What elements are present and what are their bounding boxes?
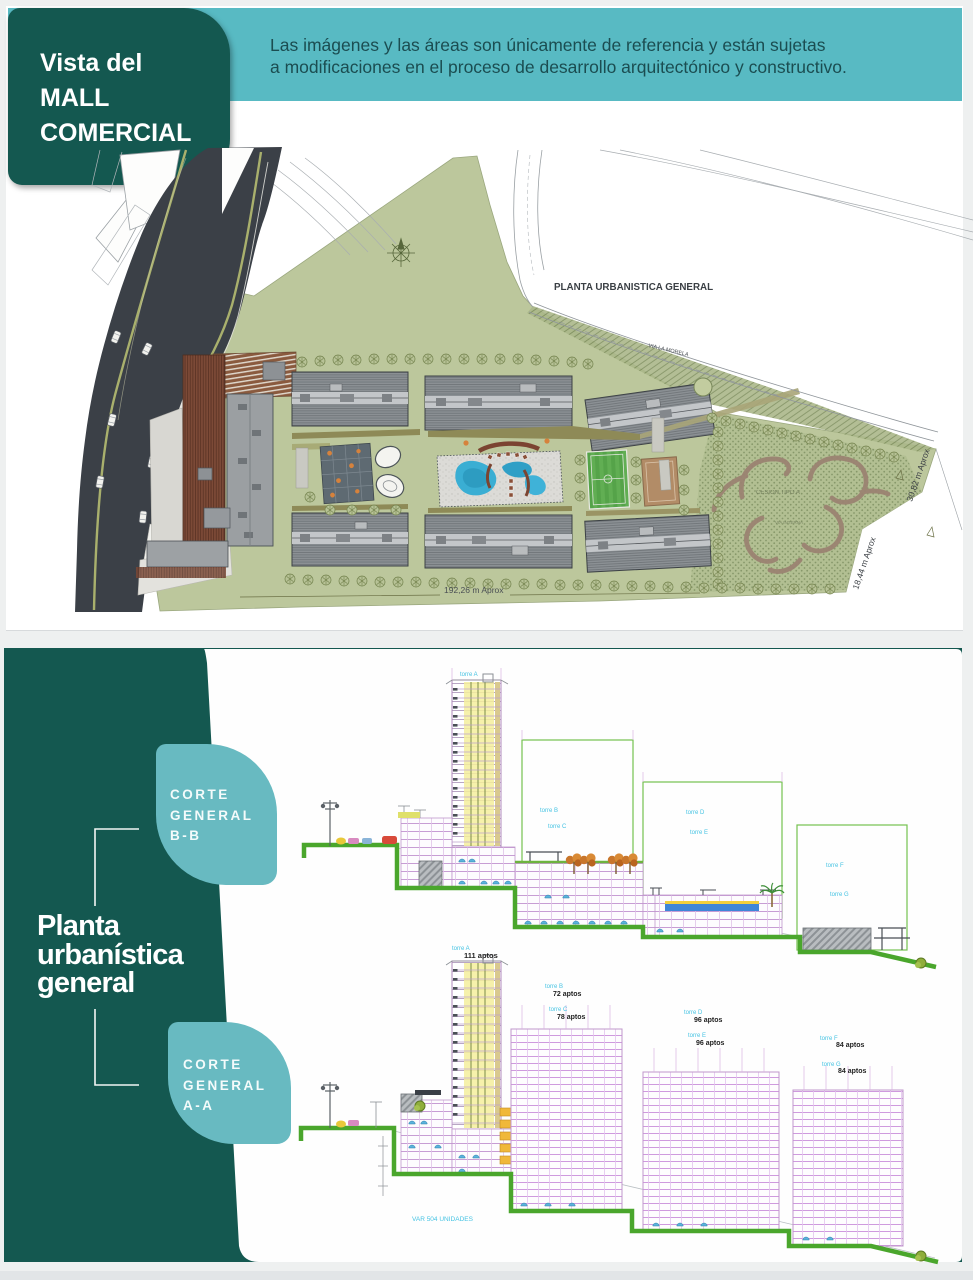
svg-text:CESION TIPO A: CESION TIPO A xyxy=(756,490,800,496)
svg-text:VIA INTERNA: VIA INTERNA xyxy=(775,520,803,525)
svg-text:PLANTA URBANISTICA GENERAL: PLANTA URBANISTICA GENERAL xyxy=(554,282,713,293)
svg-text:192,26 m Aprox: 192,26 m Aprox xyxy=(444,585,504,595)
